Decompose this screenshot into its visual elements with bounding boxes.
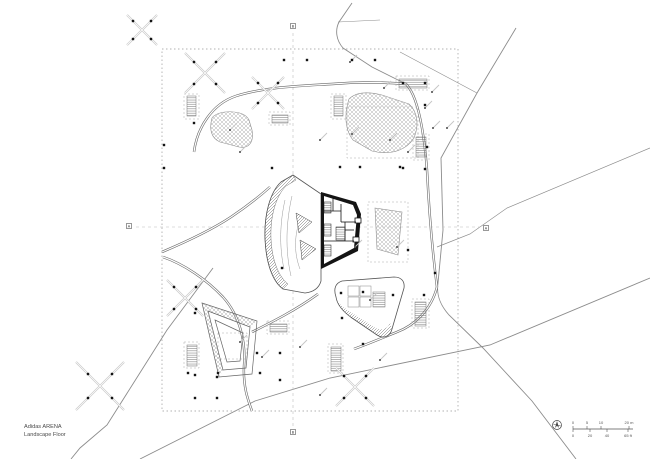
plant-tick-dot — [383, 87, 385, 89]
title-block: Adidas ARENA Landscape Floor — [24, 424, 66, 438]
core-stair — [324, 224, 331, 236]
drawing-sheet: BAAB 051020 m0204065 ft Adidas ARENA Lan… — [0, 0, 650, 459]
column-dot — [424, 82, 426, 84]
column-dot — [339, 166, 341, 168]
site-plan-svg: BAAB 051020 m0204065 ft Adidas ARENA Lan… — [0, 0, 650, 459]
stair-symbol — [272, 115, 288, 123]
walkway-outer — [162, 187, 270, 252]
plant-tick-dot — [299, 346, 301, 348]
roads-group — [71, 3, 650, 459]
plant-tick-dot — [354, 246, 356, 248]
walkway-outer — [163, 257, 252, 411]
plant-tick-dot — [351, 133, 353, 135]
tree-dot — [365, 397, 367, 399]
tree-dot — [193, 61, 195, 63]
tree-cross-inner — [185, 53, 225, 93]
tree-dot — [132, 20, 134, 22]
scale-label-m: 5 — [586, 420, 589, 425]
plant-tick-dot — [239, 341, 241, 343]
tree-cross-inner — [336, 368, 374, 406]
tree-dot — [215, 83, 217, 85]
tree-dot — [193, 83, 195, 85]
tree-dot — [111, 397, 113, 399]
north-arrow-icon — [553, 421, 562, 430]
tree-dot — [215, 61, 217, 63]
column-dot — [163, 167, 165, 169]
column-dot — [271, 167, 273, 169]
plant-tick-dot — [229, 129, 231, 131]
column-dot — [279, 379, 281, 381]
plant-tick-dot — [369, 299, 371, 301]
plant-tick — [320, 388, 327, 395]
tree-dot — [173, 286, 175, 288]
plant-tick-dot — [396, 246, 398, 248]
tree-dot — [150, 38, 152, 40]
plant-tick-dot — [261, 356, 263, 358]
column-dot — [351, 59, 353, 61]
tree-dot — [111, 373, 113, 375]
scale-label-ft: 65 ft — [624, 433, 633, 438]
plant-tick-dot — [432, 127, 434, 129]
column-dot — [362, 343, 364, 345]
stair-symbol — [187, 345, 197, 366]
column-dot — [259, 372, 261, 374]
tree-dot — [87, 397, 89, 399]
column-dot — [193, 122, 195, 124]
column-dot — [340, 292, 342, 294]
plant-tick-dot — [319, 139, 321, 141]
scale-label-ft: 0 — [572, 433, 575, 438]
tree-cross-inner — [167, 280, 203, 316]
walkway-inner — [163, 257, 252, 411]
plant-tick — [432, 85, 439, 92]
plant-tick — [433, 121, 440, 128]
plant-tick-dot — [389, 139, 391, 141]
plant-tick — [408, 145, 415, 152]
project-title: Adidas ARENA — [24, 424, 62, 430]
plant-tick — [447, 121, 454, 128]
pavilion-stair — [373, 292, 385, 307]
tree-dot — [132, 38, 134, 40]
column-dot — [194, 397, 196, 399]
planting-hatch — [346, 93, 417, 153]
plant-tick-dot — [446, 127, 448, 129]
road-line — [437, 148, 650, 247]
tree-dot — [343, 375, 345, 377]
tree-dot — [277, 82, 279, 84]
core-stair — [336, 227, 345, 240]
column-dot — [163, 144, 165, 146]
column-dot — [194, 374, 196, 376]
scale-label-ft: 20 — [588, 433, 593, 438]
plant-tick-dot — [431, 91, 433, 93]
column-dot — [402, 167, 404, 169]
tree-cross-inner — [127, 15, 157, 45]
planting-hatch — [375, 208, 402, 255]
tree-dot — [343, 397, 345, 399]
drawing-title: Landscape Floor — [24, 432, 66, 438]
column-dot — [359, 166, 361, 168]
scale-bar: 051020 m0204065 ft — [572, 420, 634, 438]
column-dot — [392, 294, 394, 296]
plant-tick — [262, 350, 269, 357]
column-dot — [424, 104, 426, 106]
scale-label-ft: 40 — [605, 433, 610, 438]
plant-tick-dot — [319, 394, 321, 396]
column-dot — [426, 146, 428, 148]
scale-label-m: 0 — [572, 420, 575, 425]
stair-symbol — [415, 302, 426, 326]
stair-symbol — [334, 96, 343, 116]
column-dot — [187, 372, 189, 374]
column-dot — [374, 59, 376, 61]
core-stair — [324, 202, 331, 213]
scale-label-m: 20 m — [625, 420, 635, 425]
tree-dot — [150, 20, 152, 22]
tree-dot — [87, 373, 89, 375]
column-dot — [423, 294, 425, 296]
pavilion-structure — [335, 277, 404, 337]
stair-symbol — [416, 137, 426, 157]
column-dot — [362, 291, 364, 293]
column-dot — [399, 166, 401, 168]
column-dot — [281, 267, 283, 269]
tree-cross-inner — [76, 362, 124, 410]
plant-tick — [380, 353, 387, 360]
column-dot — [402, 82, 404, 84]
column-dot — [407, 249, 409, 251]
core-stair — [324, 245, 331, 256]
stair-symbol — [187, 96, 196, 116]
walkway-inner — [162, 187, 270, 252]
column-dot — [434, 272, 436, 274]
column-dot — [216, 376, 218, 378]
plant-tick — [300, 340, 307, 347]
tree-dot — [173, 308, 175, 310]
tree-dot — [257, 82, 259, 84]
tree-dot — [277, 102, 279, 104]
column-dot — [306, 59, 308, 61]
road-line — [338, 20, 380, 22]
column-dot — [217, 372, 219, 374]
plant-tick-dot — [349, 61, 351, 63]
tree-dot — [365, 375, 367, 377]
main-building — [265, 175, 361, 293]
stair-symbol — [270, 324, 287, 332]
plant-tick — [320, 133, 327, 140]
scale-label-m: 10 — [599, 420, 604, 425]
tree-dot — [195, 308, 197, 310]
column-dot — [283, 59, 285, 61]
tree-dot — [257, 102, 259, 104]
column-dot — [216, 397, 218, 399]
plant-tick-dot — [407, 151, 409, 153]
column-dot — [279, 352, 281, 354]
plant-tick-dot — [379, 359, 381, 361]
plant-tick-dot — [424, 107, 426, 109]
road-line — [337, 3, 406, 84]
column-dot — [194, 312, 196, 314]
planting-hatch — [211, 112, 253, 148]
column-dot — [424, 168, 426, 170]
column-dot — [341, 317, 343, 319]
column-dot — [256, 352, 258, 354]
tree-dot — [195, 286, 197, 288]
ramp-structure — [202, 303, 257, 377]
stair-symbol — [331, 347, 341, 371]
plant-tick-dot — [239, 151, 241, 153]
